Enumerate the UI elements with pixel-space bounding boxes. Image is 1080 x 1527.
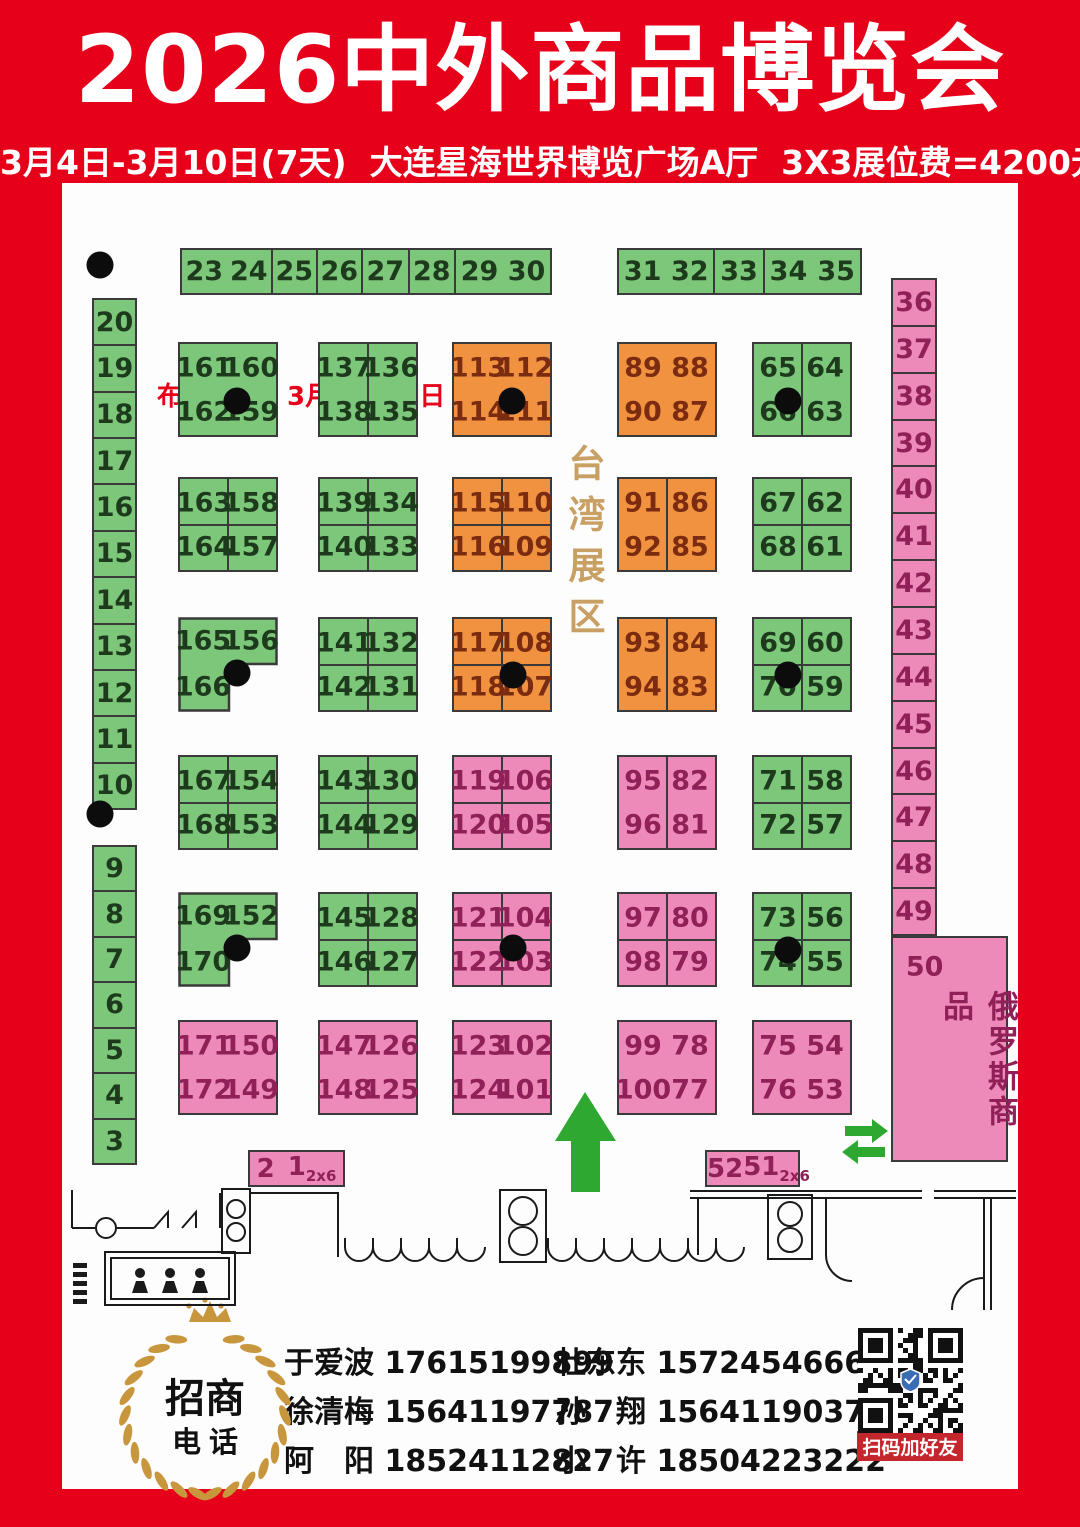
right-booth-column: 3637383940414243444546474849 — [891, 278, 937, 936]
booth-166: 166 — [175, 672, 231, 703]
booth-block-167: 167154168153 — [178, 755, 278, 850]
booth-99: 99 — [624, 1030, 662, 1061]
contact-entry: 杜东东 15724546666 — [556, 1338, 886, 1382]
booth-106: 106 — [497, 765, 553, 796]
booth-152: 152 — [223, 900, 279, 931]
booth-170: 170 — [175, 947, 231, 978]
booth-160: 160 — [223, 352, 279, 383]
pillar-dot — [224, 935, 251, 962]
booth-41: 41 — [893, 514, 935, 561]
booth-126: 126 — [363, 1030, 419, 1061]
pillar-dot — [774, 661, 801, 688]
booth-133: 133 — [363, 532, 419, 563]
booth-105: 105 — [497, 810, 553, 841]
booth-67: 67 — [759, 487, 797, 518]
booth-block-139: 139134140133 — [318, 477, 418, 572]
booth-37: 37 — [893, 327, 935, 374]
left-booth-column-2: 9876543 — [92, 845, 137, 1165]
booth-80: 80 — [671, 902, 709, 933]
booth-divider — [666, 479, 668, 570]
booth-75: 75 — [759, 1030, 797, 1061]
booth-68: 68 — [759, 532, 797, 563]
booth-33: 33 — [715, 250, 764, 293]
booth-44: 44 — [893, 655, 935, 702]
contact-entry: 小 许 18504223222 — [556, 1436, 886, 1480]
booth-36: 36 — [893, 280, 935, 327]
booth-43: 43 — [893, 608, 935, 655]
booth-50: 50 — [906, 951, 944, 982]
booth-136: 136 — [363, 352, 419, 383]
booth-block-65: 65646663 — [752, 342, 852, 437]
booth-1: 12x6 — [288, 1152, 337, 1185]
booth-129: 129 — [363, 810, 419, 841]
booth-19: 19 — [94, 346, 135, 392]
pillar-dot — [224, 660, 251, 687]
svg-text:电话: 电话 — [172, 1425, 246, 1459]
booth-7: 7 — [94, 938, 135, 983]
booth-63: 63 — [806, 397, 844, 428]
booth-divider — [666, 757, 668, 848]
booth-76: 76 — [759, 1075, 797, 1106]
booth-88: 88 — [671, 352, 709, 383]
booth-65: 65 — [759, 352, 797, 383]
booth-131: 131 — [363, 672, 419, 703]
pillar-dot — [774, 936, 801, 963]
booth-130: 130 — [363, 765, 419, 796]
booth-divider — [754, 939, 850, 941]
booth-16: 16 — [94, 485, 135, 531]
booth-divider — [666, 619, 668, 710]
booth-divider — [754, 524, 850, 526]
booth-48: 48 — [893, 842, 935, 889]
booth-86: 86 — [671, 487, 709, 518]
booth-82: 82 — [671, 765, 709, 796]
booth-29-30: 2930 — [456, 250, 550, 293]
booth-9: 9 — [94, 847, 135, 892]
taiwan-zone-label: 台湾展区 — [556, 444, 610, 648]
booth-47: 47 — [893, 795, 935, 842]
booth-60: 60 — [806, 627, 844, 658]
booth-block-171: 171150172149 — [178, 1020, 278, 1115]
booth-91: 91 — [624, 487, 662, 518]
booth-27: 27 — [363, 250, 410, 293]
booth-108: 108 — [497, 627, 553, 658]
booth-block-113: 113112114111 — [452, 342, 552, 437]
booth-78: 78 — [671, 1030, 709, 1061]
booth-25: 25 — [273, 250, 318, 293]
booth-94: 94 — [624, 672, 662, 703]
poster-subtitle: 3月4日-3月10日(7天) 大连星海世界博览广场A厅 3X3展位费=4200元 — [0, 136, 1080, 184]
booth-15: 15 — [94, 532, 135, 578]
russia-goods-block: 50俄罗斯商品 — [891, 936, 1008, 1162]
booth-strip-2: 3132333435 — [617, 248, 862, 295]
booth-17: 17 — [94, 439, 135, 485]
booth-95: 95 — [624, 765, 662, 796]
booth-block-123: 123102124101 — [452, 1020, 552, 1115]
booth-block-143: 143130144129 — [318, 755, 418, 850]
building-outline — [62, 1185, 1018, 1317]
booth-5: 5 — [94, 1029, 135, 1074]
booth-divider — [320, 524, 416, 526]
booth-132: 132 — [363, 627, 419, 658]
booth-42: 42 — [893, 561, 935, 608]
booth-84: 84 — [671, 627, 709, 658]
booth-69: 69 — [759, 627, 797, 658]
booth-divider — [180, 802, 276, 804]
booth-62: 62 — [806, 487, 844, 518]
expo-poster: 2026中外商品博览会 3月4日-3月10日(7天) 大连星海世界博览广场A厅 … — [0, 0, 1080, 1527]
booth-104: 104 — [497, 902, 553, 933]
booth-53: 53 — [806, 1075, 844, 1106]
booth-13: 13 — [94, 625, 135, 671]
booth-6: 6 — [94, 983, 135, 1028]
contact-phone-list: 于爱波 17615199899杜东东 15724546666徐清梅 156411… — [284, 1338, 886, 1485]
booth-block-137: 137136138135 — [318, 342, 418, 437]
booth-20: 20 — [94, 300, 135, 346]
booth-divider — [801, 344, 803, 435]
booth-92: 92 — [624, 532, 662, 563]
booth-40: 40 — [893, 467, 935, 514]
booth-strip-1: 2324252627282930 — [180, 248, 552, 295]
svg-text:招商: 招商 — [165, 1376, 245, 1422]
booth-size-label: 2x6 — [306, 1167, 337, 1185]
booth-102: 102 — [497, 1030, 553, 1061]
booth-58: 58 — [806, 765, 844, 796]
booth-51: 512x6 — [743, 1152, 810, 1185]
contact-row: 阿 阳 18524112827小 许 18504223222 — [284, 1436, 886, 1480]
booth-block-75: 75547653 — [752, 1020, 852, 1115]
booth-block-69: 69607059 — [752, 617, 852, 712]
booth-31-32: 3132 — [619, 250, 715, 293]
booth-93: 93 — [624, 627, 662, 658]
booth-57: 57 — [806, 810, 844, 841]
booth-11: 11 — [94, 717, 135, 763]
booth-125: 125 — [363, 1075, 419, 1106]
booth-73: 73 — [759, 902, 797, 933]
booth-size-label: 2x6 — [779, 1167, 810, 1185]
booth-8: 8 — [94, 892, 135, 937]
booth-101: 101 — [497, 1075, 553, 1106]
booth-28: 28 — [410, 250, 457, 293]
booth-divider — [754, 664, 850, 666]
recruit-badge: 招商电话 — [103, 1292, 307, 1502]
booth-block-117: 117108118107 — [452, 617, 552, 712]
pillar-dot — [87, 801, 114, 828]
booth-72: 72 — [759, 810, 797, 841]
booth-71: 71 — [759, 765, 797, 796]
booth-38: 38 — [893, 374, 935, 421]
pillar-dot — [223, 388, 250, 415]
booth-110: 110 — [497, 487, 553, 518]
qr-code — [858, 1328, 963, 1433]
booth-96: 96 — [624, 810, 662, 841]
booth-39: 39 — [893, 421, 935, 468]
booth-59: 59 — [806, 672, 844, 703]
booth-divider — [320, 664, 416, 666]
booth-56: 56 — [806, 902, 844, 933]
booth-3: 3 — [94, 1120, 135, 1163]
booth-26: 26 — [318, 250, 364, 293]
booth-112: 112 — [497, 352, 553, 383]
booth-block-95: 95829681 — [617, 755, 717, 850]
pillar-dot — [774, 388, 801, 415]
qr-caption: 扫码加好友 — [857, 1431, 963, 1461]
contact-entry: 阿 阳 18524112827 — [284, 1436, 556, 1480]
booth-block-99: 997810077 — [617, 1020, 717, 1115]
booth-150: 150 — [223, 1030, 279, 1061]
booth-158: 158 — [223, 487, 279, 518]
booth-157: 157 — [223, 532, 279, 563]
booth-55: 55 — [806, 947, 844, 978]
booth-divider — [320, 939, 416, 941]
booth-100: 100 — [615, 1075, 671, 1106]
booth-135: 135 — [363, 397, 419, 428]
contact-entry: 徐清梅 15641197787 — [284, 1387, 556, 1431]
booth-45: 45 — [893, 702, 935, 749]
booth-divider — [754, 802, 850, 804]
booth-block-73: 73567455 — [752, 892, 852, 987]
booth-block-119: 119106120105 — [452, 755, 552, 850]
booth-149: 149 — [223, 1075, 279, 1106]
booth-89: 89 — [624, 352, 662, 383]
booth-block-67: 67626861 — [752, 477, 852, 572]
booth-61: 61 — [806, 532, 844, 563]
booth-154: 154 — [223, 765, 279, 796]
contact-row: 徐清梅 15641197787孙 翔 15641190377 — [284, 1387, 886, 1431]
booth-block-115: 115110116109 — [452, 477, 552, 572]
booth-block-147: 147126148125 — [318, 1020, 418, 1115]
booth-83: 83 — [671, 672, 709, 703]
booth-block-141: 141132142131 — [318, 617, 418, 712]
booth-block-91: 91869285 — [617, 477, 717, 572]
booth-156: 156 — [223, 625, 279, 656]
booth-2-1: 212x6 — [248, 1150, 345, 1187]
booth-23-24: 2324 — [182, 250, 273, 293]
laurel-wreath-icon: 招商电话 — [103, 1292, 307, 1502]
pillar-dot — [87, 252, 114, 279]
booth-block-97: 97809879 — [617, 892, 717, 987]
booth-divider — [180, 524, 276, 526]
booth-block-93: 93849483 — [617, 617, 717, 712]
booth-134: 134 — [363, 487, 419, 518]
booth-153: 153 — [223, 810, 279, 841]
booth-90: 90 — [624, 397, 662, 428]
booth-54: 54 — [806, 1030, 844, 1061]
contact-entry: 于爱波 17615199899 — [284, 1338, 556, 1382]
booth-46: 46 — [893, 749, 935, 796]
booth-109: 109 — [497, 532, 553, 563]
booth-49: 49 — [893, 889, 935, 934]
booth-128: 128 — [363, 902, 419, 933]
contact-entry: 孙 翔 15641190377 — [556, 1387, 886, 1431]
poster-title: 2026中外商品博览会 — [0, 22, 1080, 121]
pillar-dot — [498, 388, 525, 415]
booth-12: 12 — [94, 671, 135, 717]
booth-block-169: 169152170 — [178, 892, 278, 987]
booth-2: 2 — [257, 1154, 275, 1184]
booth-block-89: 89889087 — [617, 342, 717, 437]
booth-52-51: 52512x6 — [705, 1150, 800, 1187]
russia-goods-label: 俄罗斯商品 — [933, 990, 1023, 1160]
booth-block-71: 71587257 — [752, 755, 852, 850]
booth-4: 4 — [94, 1074, 135, 1119]
pillar-dot — [499, 661, 526, 688]
booth-79: 79 — [671, 947, 709, 978]
booth-98: 98 — [624, 947, 662, 978]
booth-block-121: 121104122103 — [452, 892, 552, 987]
booth-18: 18 — [94, 393, 135, 439]
booth-77: 77 — [671, 1075, 709, 1106]
booth-14: 14 — [94, 578, 135, 624]
booth-97: 97 — [624, 902, 662, 933]
booth-87: 87 — [671, 397, 709, 428]
booth-divider — [320, 802, 416, 804]
booth-divider — [454, 524, 550, 526]
booth-81: 81 — [671, 810, 709, 841]
booth-block-165: 165156166 — [178, 617, 278, 712]
booth-52: 52 — [707, 1154, 743, 1184]
booth-127: 127 — [363, 947, 419, 978]
left-booth-column-1: 2019181716151413121110 — [92, 298, 137, 810]
booth-85: 85 — [671, 532, 709, 563]
booth-block-161: 161160162159 — [178, 342, 278, 437]
contact-row: 于爱波 17615199899杜东东 15724546666 — [284, 1338, 886, 1382]
pillar-dot — [499, 934, 526, 961]
booth-divider — [619, 939, 715, 941]
booth-34-35: 3435 — [765, 250, 860, 293]
booth-block-163: 163158164157 — [178, 477, 278, 572]
booth-divider — [454, 802, 550, 804]
booth-64: 64 — [806, 352, 844, 383]
booth-block-145: 145128146127 — [318, 892, 418, 987]
